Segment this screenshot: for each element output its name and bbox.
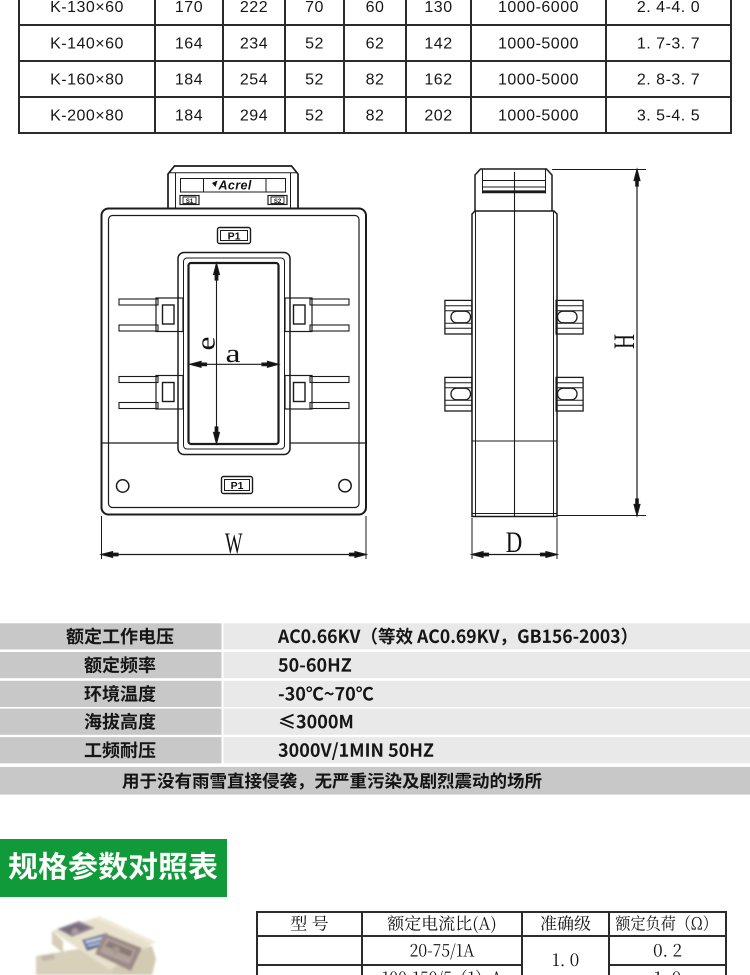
svg-text:D: D <box>506 526 523 559</box>
svg-text:70: 70 <box>305 0 324 16</box>
svg-text:2. 4-4. 0: 2. 4-4. 0 <box>637 0 700 16</box>
svg-text:S1: S1 <box>186 199 194 205</box>
svg-text:K-140×60: K-140×60 <box>50 36 124 53</box>
svg-text:P1: P1 <box>231 480 244 492</box>
svg-text:222: 222 <box>240 0 268 16</box>
svg-text:e: e <box>192 337 221 351</box>
svg-text:W: W <box>225 527 243 560</box>
svg-text:1. 7-3. 7: 1. 7-3. 7 <box>637 36 700 53</box>
svg-text:1000-5000: 1000-5000 <box>498 72 579 89</box>
svg-text:82: 82 <box>366 72 385 89</box>
svg-text:1000-5000: 1000-5000 <box>498 108 579 125</box>
svg-text:162: 162 <box>424 72 452 89</box>
svg-text:H: H <box>608 334 641 349</box>
svg-text:170: 170 <box>175 0 203 16</box>
svg-text:82: 82 <box>366 108 385 125</box>
svg-text:164: 164 <box>175 36 203 53</box>
svg-text:K-200×80: K-200×80 <box>50 108 124 125</box>
svg-text:130: 130 <box>424 0 452 16</box>
svg-text:60: 60 <box>366 0 385 16</box>
svg-text:a: a <box>226 339 242 368</box>
svg-text:202: 202 <box>424 108 452 125</box>
svg-text:Acrel: Acrel <box>218 179 252 193</box>
svg-text:142: 142 <box>424 36 452 53</box>
svg-text:1000-5000: 1000-5000 <box>498 36 579 53</box>
svg-text:234: 234 <box>240 36 268 53</box>
svg-text:52: 52 <box>305 108 324 125</box>
svg-text:2. 8-3. 7: 2. 8-3. 7 <box>637 72 700 89</box>
svg-text:K-160×80: K-160×80 <box>50 72 124 89</box>
svg-text:1000-6000: 1000-6000 <box>498 0 579 16</box>
svg-text:3. 5-4. 5: 3. 5-4. 5 <box>637 108 700 125</box>
svg-text:K-130×60: K-130×60 <box>50 0 124 16</box>
svg-text:P1: P1 <box>228 231 241 243</box>
svg-text:294: 294 <box>240 108 268 125</box>
svg-text:52: 52 <box>305 36 324 53</box>
svg-text:52: 52 <box>305 72 324 89</box>
svg-text:184: 184 <box>175 108 203 125</box>
svg-text:S2: S2 <box>274 199 282 205</box>
svg-text:254: 254 <box>240 72 268 89</box>
svg-text:184: 184 <box>175 72 203 89</box>
svg-text:62: 62 <box>366 36 385 53</box>
